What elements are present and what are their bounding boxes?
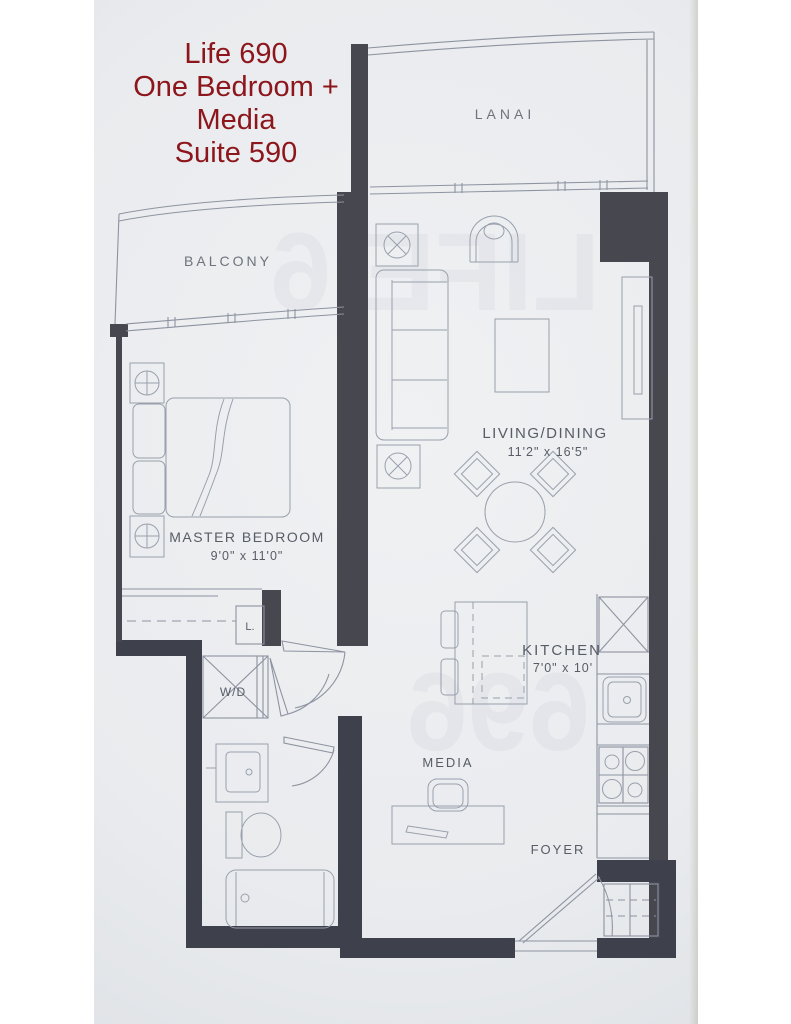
floorplan-photo: Life 690 One Bedroom + Media Suite 590 L… <box>0 0 791 1024</box>
nightstand-bottom <box>130 516 164 557</box>
walls <box>110 44 676 958</box>
end-table-bottom <box>377 445 420 488</box>
room-label-foyer: FOYER <box>531 842 586 857</box>
bathtub <box>226 870 334 928</box>
room-dims-master-bedroom: 9'0" x 11'0" <box>211 549 284 563</box>
wall-bath-media <box>338 716 362 948</box>
media-desk <box>392 806 504 844</box>
label-linen-closet: L. <box>245 621 254 633</box>
bathroom-door <box>284 737 334 786</box>
desk-object <box>406 826 448 838</box>
floorplan-drawing: LIFE 6 696 <box>0 0 791 1024</box>
wall-under-foyer-closet <box>597 938 676 958</box>
room-label-media: MEDIA <box>422 755 473 770</box>
room-dims-kitchen: 7'0" x 10' <box>533 661 593 675</box>
print-bleedthrough: LIFE 6 696 <box>270 211 600 774</box>
dining-table <box>454 451 575 572</box>
room-label-lanai: LANAI <box>475 106 535 122</box>
room-label-kitchen: KITCHEN <box>522 642 602 659</box>
label-washer-dryer: W/D <box>220 685 246 699</box>
wall-bath-bottom <box>198 926 340 948</box>
entry-door <box>519 874 612 943</box>
nightstand-top <box>130 363 164 403</box>
wall-under-bedroom <box>116 640 202 656</box>
bed <box>133 398 290 517</box>
wall-left-lower <box>186 656 202 948</box>
bathroom-vanity <box>206 744 268 802</box>
bathroom <box>206 737 334 928</box>
bedroom-closet <box>122 589 264 644</box>
lanai-door-sill <box>370 181 648 187</box>
wall-foyer-closet-top <box>597 860 676 882</box>
wall-bedroom-left <box>116 327 122 642</box>
room-dims-living-dining: 11'2" x 16'5" <box>508 445 589 459</box>
kitchen-sink <box>603 677 646 722</box>
bedroom-door <box>282 641 345 708</box>
room-label-living-dining: LIVING/DINING <box>482 425 607 442</box>
room-label-balcony: BALCONY <box>184 253 272 269</box>
entry-threshold <box>515 941 597 951</box>
wall-central <box>337 192 368 646</box>
wall-central-top <box>351 44 368 192</box>
toilet <box>226 812 281 858</box>
room-label-master-bedroom: MASTER BEDROOM <box>169 529 325 545</box>
room-media <box>392 779 504 844</box>
refrigerator <box>599 597 648 652</box>
wall-linen-pier <box>262 590 281 646</box>
wall-bottom-left-of-entry <box>340 938 515 958</box>
media-console <box>622 277 652 419</box>
stove <box>599 747 648 803</box>
